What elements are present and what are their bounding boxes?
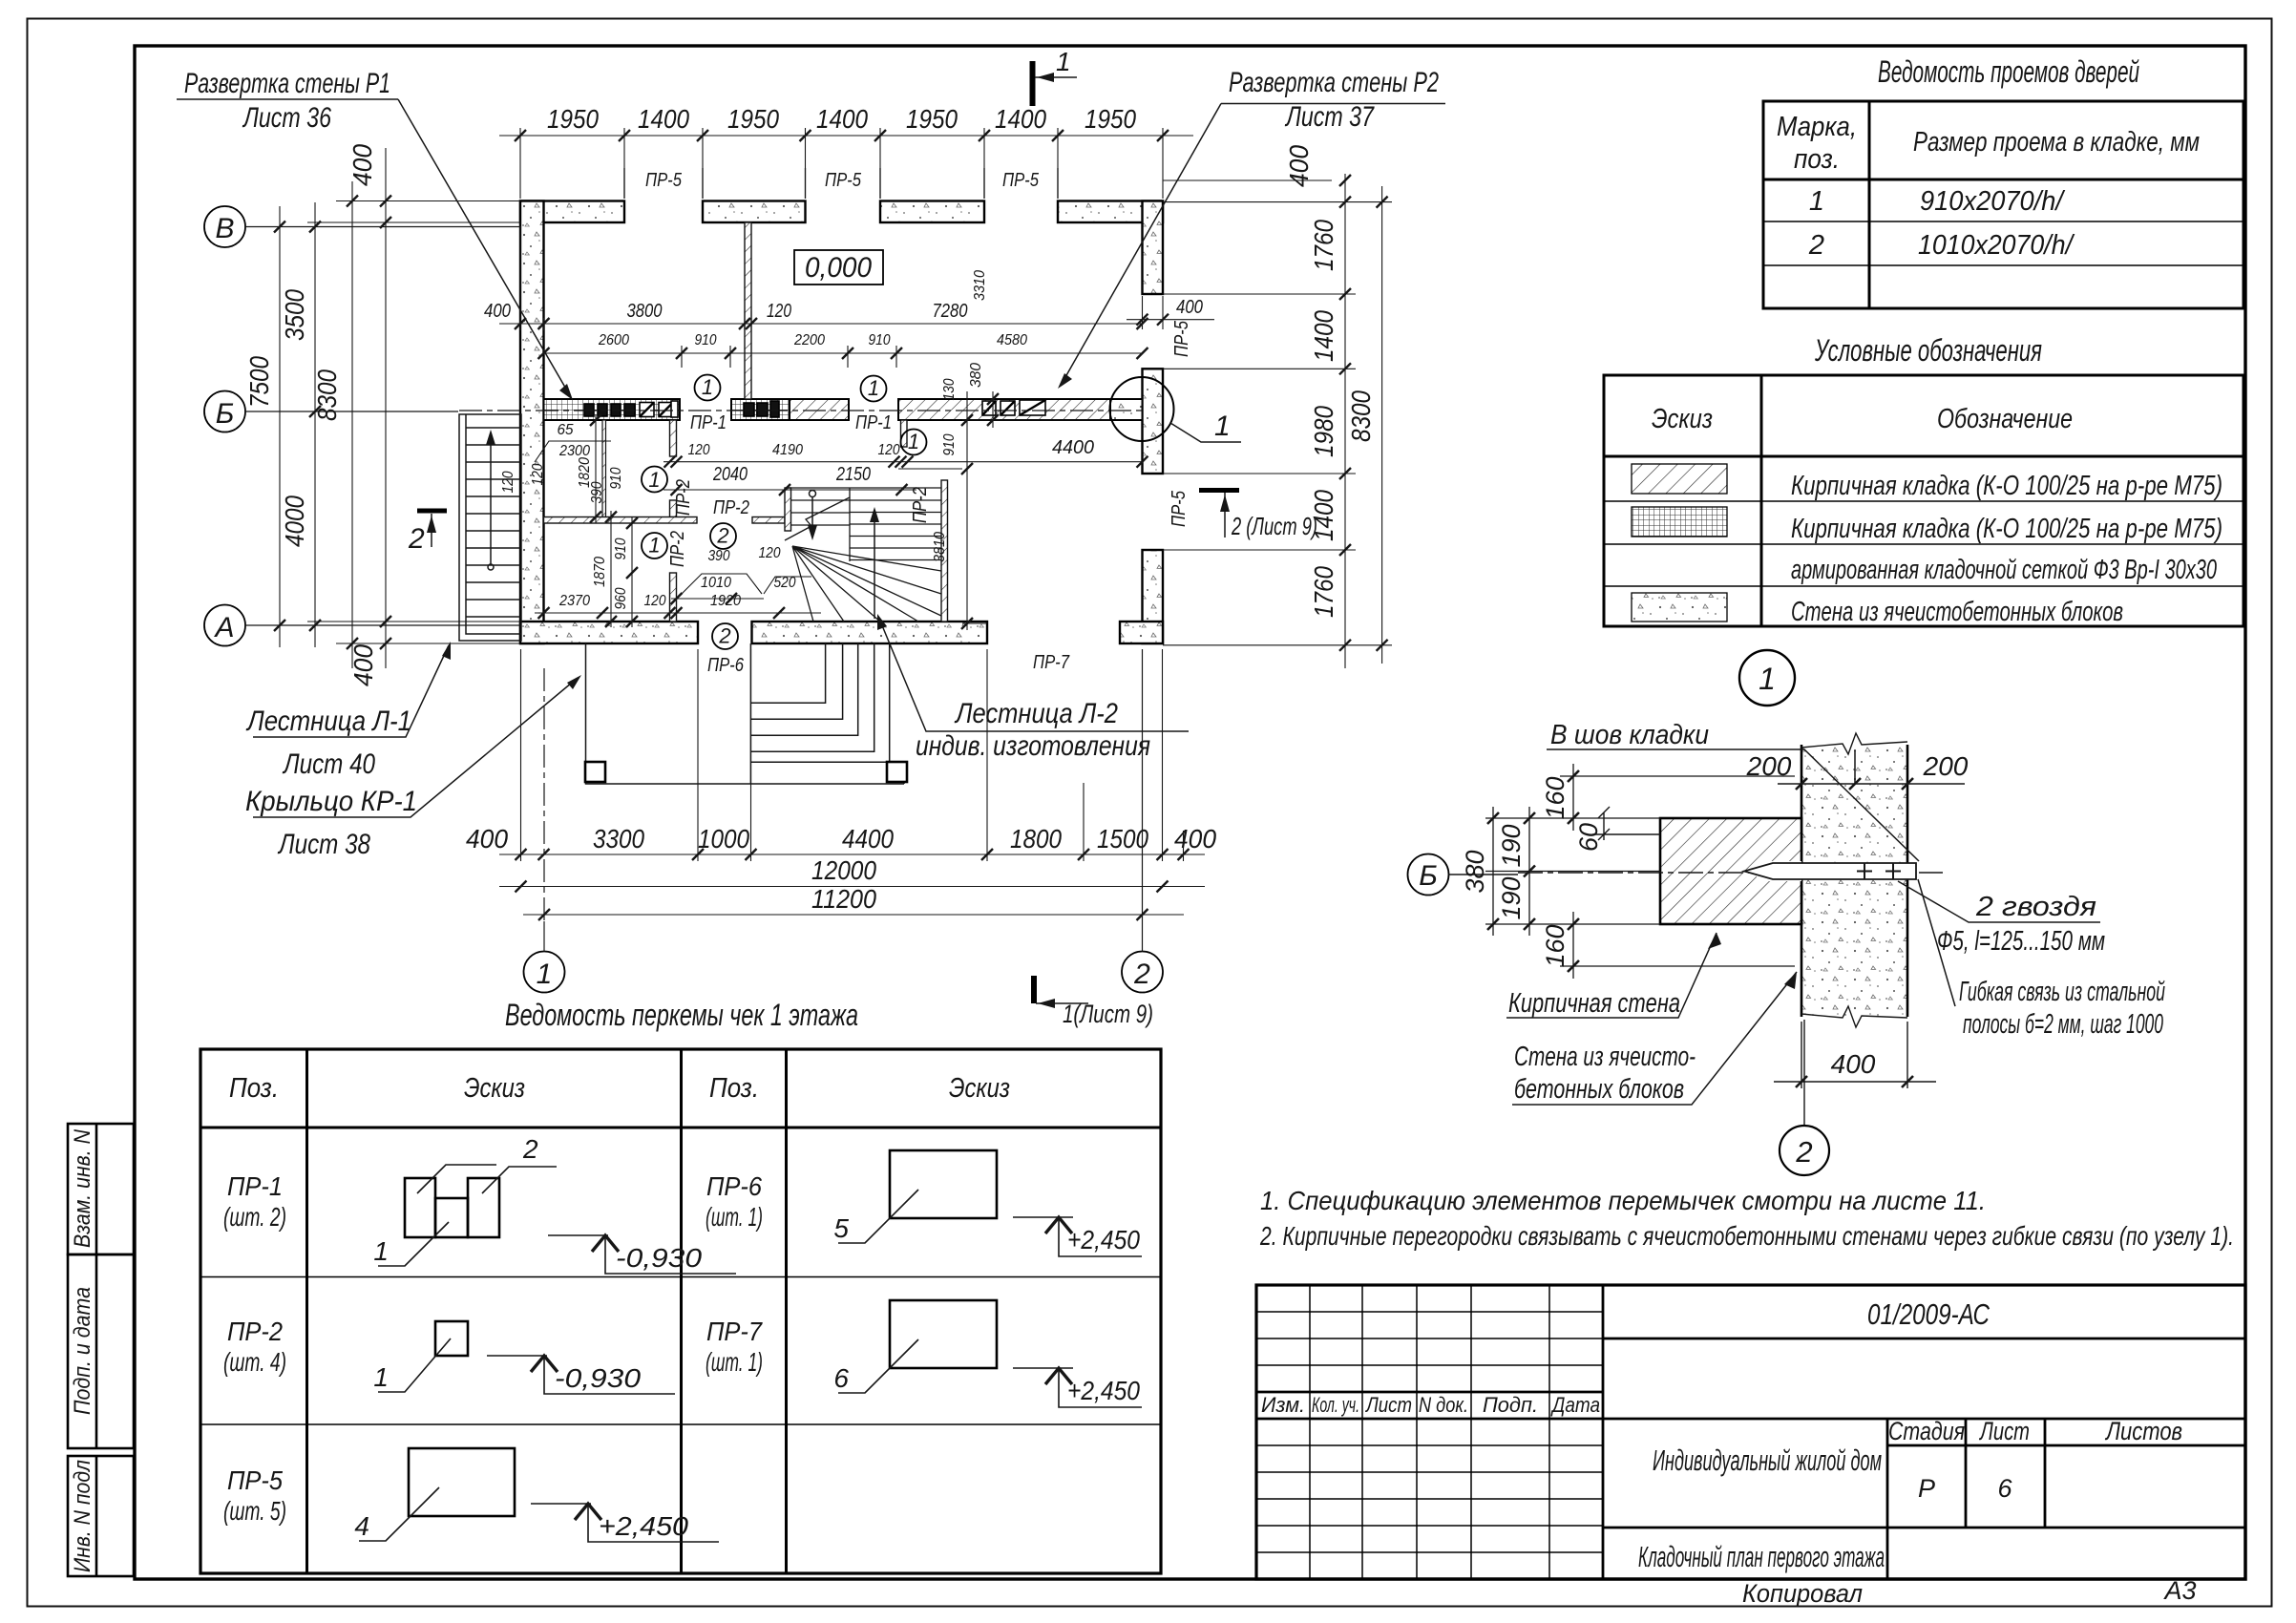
svg-text:6: 6 <box>833 1363 849 1393</box>
svg-text:Ведомость перкемы чек 1 этажа: Ведомость перкемы чек 1 этажа <box>505 998 858 1032</box>
svg-text:Ф5, l=125...150 мм: Ф5, l=125...150 мм <box>1937 926 2105 957</box>
svg-text:120: 120 <box>767 301 791 322</box>
svg-text:ПР-2: ПР-2 <box>910 487 931 523</box>
svg-text:2: 2 <box>1133 959 1150 990</box>
svg-text:2: 2 <box>1808 230 1824 261</box>
svg-text:Б: Б <box>216 398 235 430</box>
svg-text:01/2009-АС: 01/2009-АС <box>1867 1297 1990 1331</box>
svg-text:ПР-1: ПР-1 <box>690 412 727 433</box>
svg-text:910: 910 <box>869 332 891 348</box>
svg-text:400: 400 <box>1284 145 1314 187</box>
svg-text:1010х2070/h/: 1010х2070/h/ <box>1918 230 2075 261</box>
svg-text:В: В <box>215 213 234 244</box>
svg-text:4000: 4000 <box>280 495 309 547</box>
svg-text:+2,450: +2,450 <box>1067 1376 1140 1405</box>
svg-text:1010: 1010 <box>701 575 731 591</box>
svg-text:Б: Б <box>1419 860 1438 892</box>
svg-text:ПР-6: ПР-6 <box>706 1171 762 1201</box>
svg-text:160: 160 <box>1541 776 1569 819</box>
svg-text:2370: 2370 <box>558 593 590 609</box>
svg-text:Размер проема в кладке, мм: Размер проема в кладке, мм <box>1913 127 2200 158</box>
svg-text:поз.: поз. <box>1794 144 1840 175</box>
svg-text:ПР-1: ПР-1 <box>855 412 892 433</box>
svg-text:+2,450: +2,450 <box>1067 1225 1140 1254</box>
svg-text:3500: 3500 <box>280 289 309 341</box>
svg-text:ПР-2: ПР-2 <box>667 531 688 567</box>
svg-text:400: 400 <box>484 301 511 322</box>
svg-text:индив. изготовления: индив. изготовления <box>916 730 1150 762</box>
svg-text:Стена из ячеистобетонных блоко: Стена из ячеистобетонных блоков <box>1791 597 2123 627</box>
svg-text:ПР-5: ПР-5 <box>645 170 683 191</box>
svg-text:Взам. инв. N: Взам. инв. N <box>70 1128 95 1248</box>
svg-text:910: 910 <box>613 537 629 559</box>
svg-text:А3: А3 <box>2162 1576 2196 1605</box>
svg-text:400: 400 <box>348 144 377 186</box>
svg-text:-0,930: -0,930 <box>555 1363 641 1393</box>
svg-text:120: 120 <box>530 463 546 485</box>
svg-text:1: 1 <box>648 534 660 558</box>
svg-text:0,000: 0,000 <box>805 252 872 284</box>
svg-text:Эскиз: Эскиз <box>1652 404 1713 434</box>
svg-text:2: 2 <box>1795 1135 1812 1169</box>
svg-text:130: 130 <box>941 378 958 400</box>
svg-text:3800: 3800 <box>627 301 663 322</box>
svg-text:(шт. 5): (шт. 5) <box>223 1496 286 1526</box>
svg-text:4580: 4580 <box>997 332 1027 348</box>
svg-text:400: 400 <box>348 644 378 686</box>
svg-text:Кладочный план первого этажа: Кладочный план первого этажа <box>1638 1540 1885 1573</box>
svg-text:ПР-5: ПР-5 <box>1169 490 1190 527</box>
svg-text:910: 910 <box>695 332 717 348</box>
svg-text:8300: 8300 <box>1346 390 1376 442</box>
svg-text:ПР-7: ПР-7 <box>1033 652 1070 673</box>
svg-text:2040: 2040 <box>712 464 748 485</box>
svg-text:Кирпичная кладка (К-О 100/25 н: Кирпичная кладка (К-О 100/25 на р-ре М75… <box>1791 471 2222 501</box>
svg-text:Эскиз: Эскиз <box>949 1073 1010 1104</box>
svg-text:12000: 12000 <box>811 855 876 885</box>
svg-text:1: 1 <box>537 959 553 990</box>
svg-text:Условные обозначения: Условные обозначения <box>1814 333 2042 368</box>
svg-text:В шов кладки: В шов кладки <box>1550 720 1709 750</box>
svg-text:1400: 1400 <box>1309 310 1338 362</box>
svg-text:1950: 1950 <box>906 104 958 134</box>
svg-text:1: 1 <box>868 376 879 400</box>
svg-text:Развертка стены Р1: Развертка стены Р1 <box>184 68 390 99</box>
svg-text:ПР-5: ПР-5 <box>825 170 862 191</box>
svg-text:190: 190 <box>1497 876 1526 919</box>
svg-text:1400: 1400 <box>638 104 689 134</box>
svg-text:1760: 1760 <box>1309 220 1338 271</box>
svg-text:2: 2 <box>718 624 730 648</box>
svg-text:1: 1 <box>908 430 919 453</box>
svg-text:190: 190 <box>1497 824 1526 867</box>
svg-text:120: 120 <box>878 442 900 458</box>
svg-text:2150: 2150 <box>835 464 871 485</box>
svg-text:1: 1 <box>373 1362 389 1392</box>
svg-text:Гибкая связь из стальной: Гибкая связь из стальной <box>1959 977 2165 1007</box>
svg-text:ПР-2: ПР-2 <box>713 497 749 518</box>
svg-text:1950: 1950 <box>1085 104 1136 134</box>
svg-text:380: 380 <box>968 363 984 388</box>
svg-text:бетонных блоков: бетонных блоков <box>1514 1074 1684 1105</box>
svg-text:7500: 7500 <box>244 356 274 408</box>
svg-text:ПР-2: ПР-2 <box>673 479 694 516</box>
svg-text:1: 1 <box>648 468 660 492</box>
svg-text:Ведомость проемов дверей: Ведомость проемов дверей <box>1878 54 2139 89</box>
svg-text:N док.: N док. <box>1419 1393 1468 1417</box>
svg-text:65: 65 <box>558 422 574 438</box>
svg-text:1: 1 <box>1056 47 1071 76</box>
svg-text:120: 120 <box>644 593 666 609</box>
svg-text:120: 120 <box>759 545 781 561</box>
svg-text:ПР-6: ПР-6 <box>707 655 745 676</box>
svg-text:Р: Р <box>1918 1474 1935 1503</box>
svg-text:400: 400 <box>1174 824 1216 854</box>
svg-text:Стадия: Стадия <box>1888 1417 1965 1445</box>
svg-text:1400: 1400 <box>816 104 868 134</box>
svg-text:Марка,: Марка, <box>1777 112 1857 142</box>
svg-text:160: 160 <box>1541 924 1569 967</box>
svg-text:3810: 3810 <box>932 532 948 562</box>
svg-text:4: 4 <box>354 1511 369 1541</box>
svg-text:1870: 1870 <box>592 557 608 587</box>
svg-text:ПР-5: ПР-5 <box>1171 320 1192 357</box>
svg-text:Лист 37: Лист 37 <box>1284 101 1375 133</box>
svg-text:390: 390 <box>589 481 605 503</box>
svg-text:4190: 4190 <box>772 442 803 458</box>
svg-text:1950: 1950 <box>547 104 599 134</box>
svg-text:400: 400 <box>466 824 508 854</box>
svg-text:400: 400 <box>1176 297 1203 318</box>
svg-text:Лист: Лист <box>1364 1393 1412 1417</box>
svg-text:960: 960 <box>613 587 629 609</box>
svg-text:400: 400 <box>1831 1049 1876 1079</box>
svg-text:1. Спецификацию элементов пере: 1. Спецификацию элементов перемычек смот… <box>1260 1186 1986 1215</box>
svg-text:1500: 1500 <box>1097 824 1148 854</box>
svg-text:2: 2 <box>408 523 425 555</box>
svg-text:4400: 4400 <box>1052 437 1094 458</box>
svg-text:910: 910 <box>608 467 624 489</box>
svg-text:2: 2 <box>716 524 728 548</box>
svg-text:1760: 1760 <box>1309 566 1338 618</box>
svg-text:Лист 38: Лист 38 <box>277 829 370 860</box>
svg-text:Лист 36: Лист 36 <box>242 102 331 134</box>
svg-text:60: 60 <box>1574 823 1603 852</box>
svg-text:Кирпичная стена: Кирпичная стена <box>1508 988 1680 1019</box>
svg-text:1: 1 <box>1214 411 1231 442</box>
svg-text:Индивидуальный жилой дом: Индивидуальный жилой дом <box>1653 1444 1882 1477</box>
svg-text:2200: 2200 <box>793 332 825 348</box>
svg-text:ПР-2: ПР-2 <box>227 1317 283 1346</box>
svg-text:(шт. 2): (шт. 2) <box>223 1202 286 1232</box>
svg-text:Лестница Л-1: Лестница Л-1 <box>245 706 411 737</box>
svg-text:2: 2 <box>522 1134 538 1164</box>
svg-text:520: 520 <box>774 575 796 591</box>
svg-text:3310: 3310 <box>972 270 988 301</box>
svg-text:2600: 2600 <box>598 332 629 348</box>
svg-text:(шт. 4): (шт. 4) <box>223 1347 286 1377</box>
svg-text:1980: 1980 <box>1309 406 1338 457</box>
svg-text:А: А <box>213 612 234 643</box>
svg-text:Дата: Дата <box>1549 1393 1600 1417</box>
svg-text:Листов: Листов <box>2104 1417 2182 1445</box>
svg-text:Инв. N подл: Инв. N подл <box>70 1460 95 1572</box>
svg-text:ПР-1: ПР-1 <box>227 1171 283 1201</box>
svg-text:1920: 1920 <box>710 593 741 609</box>
svg-text:армированная кладочной сеткой: армированная кладочной сеткой Ф3 Вр-I 30… <box>1791 555 2217 585</box>
svg-text:Лестница Л-2: Лестница Л-2 <box>954 698 1118 729</box>
svg-text:3300: 3300 <box>593 824 644 854</box>
svg-text:ПР-5: ПР-5 <box>1002 170 1040 191</box>
svg-text:Лист: Лист <box>1979 1417 2030 1445</box>
svg-text:Поз.: Поз. <box>229 1073 279 1104</box>
svg-text:Развертка стены Р2: Развертка стены Р2 <box>1229 67 1439 98</box>
svg-text:910: 910 <box>941 433 958 455</box>
svg-text:1400: 1400 <box>995 104 1046 134</box>
svg-text:6: 6 <box>1997 1474 2012 1503</box>
svg-text:7280: 7280 <box>933 301 968 322</box>
svg-text:Крыльцо КР-1: Крыльцо КР-1 <box>245 786 417 817</box>
svg-text:Кол. уч.: Кол. уч. <box>1312 1393 1359 1417</box>
svg-text:2. Кирпичные перегородки связы: 2. Кирпичные перегородки связывать с яче… <box>1259 1221 2234 1251</box>
svg-text:8300: 8300 <box>312 369 342 421</box>
svg-text:Лист 40: Лист 40 <box>282 748 375 780</box>
svg-text:1: 1 <box>373 1236 389 1266</box>
svg-text:2300: 2300 <box>558 443 590 459</box>
svg-text:390: 390 <box>708 548 730 564</box>
svg-text:1: 1 <box>1759 662 1776 696</box>
svg-text:Подп.: Подп. <box>1483 1393 1538 1417</box>
svg-text:Поз.: Поз. <box>709 1073 759 1104</box>
svg-text:-0,930: -0,930 <box>616 1243 702 1273</box>
svg-text:11200: 11200 <box>811 884 876 914</box>
svg-text:Кирпичная кладка (К-О 100/25 н: Кирпичная кладка (К-О 100/25 на р-ре М75… <box>1791 514 2222 544</box>
svg-text:ПР-7: ПР-7 <box>706 1317 763 1346</box>
svg-text:Эскиз: Эскиз <box>464 1073 525 1104</box>
svg-text:полосы б=2 мм, шаг 1000: полосы б=2 мм, шаг 1000 <box>1963 1009 2163 1040</box>
svg-text:1(Лист 9): 1(Лист 9) <box>1063 1000 1153 1028</box>
svg-text:1: 1 <box>1809 186 1824 217</box>
svg-text:(шт. 1): (шт. 1) <box>706 1202 763 1232</box>
svg-text:380: 380 <box>1461 850 1489 893</box>
svg-text:1000: 1000 <box>698 824 749 854</box>
svg-text:5: 5 <box>833 1213 849 1243</box>
svg-text:1950: 1950 <box>727 104 779 134</box>
svg-text:200: 200 <box>1923 751 1969 781</box>
svg-text:Обозначение: Обозначение <box>1937 404 2073 434</box>
svg-text:4400: 4400 <box>842 824 894 854</box>
svg-text:1: 1 <box>702 375 713 399</box>
svg-text:Изм.: Изм. <box>1261 1393 1305 1417</box>
svg-text:Подп. и дата: Подп. и дата <box>70 1287 95 1415</box>
svg-text:910х2070/h/: 910х2070/h/ <box>1920 186 2066 217</box>
svg-text:1800: 1800 <box>1010 824 1062 854</box>
svg-text:ПР-5: ПР-5 <box>227 1465 283 1495</box>
svg-text:Стена из ячеисто-: Стена из ячеисто- <box>1514 1042 1696 1072</box>
svg-text:Копировал: Копировал <box>1742 1579 1863 1608</box>
svg-text:2 (Лист 9): 2 (Лист 9) <box>1231 512 1317 540</box>
svg-text:+2,450: +2,450 <box>599 1511 688 1541</box>
svg-text:120: 120 <box>688 442 710 458</box>
svg-text:120: 120 <box>500 471 516 493</box>
svg-text:(шт. 1): (шт. 1) <box>706 1347 763 1377</box>
svg-text:2 гвоздя: 2 гвоздя <box>1975 892 2096 922</box>
